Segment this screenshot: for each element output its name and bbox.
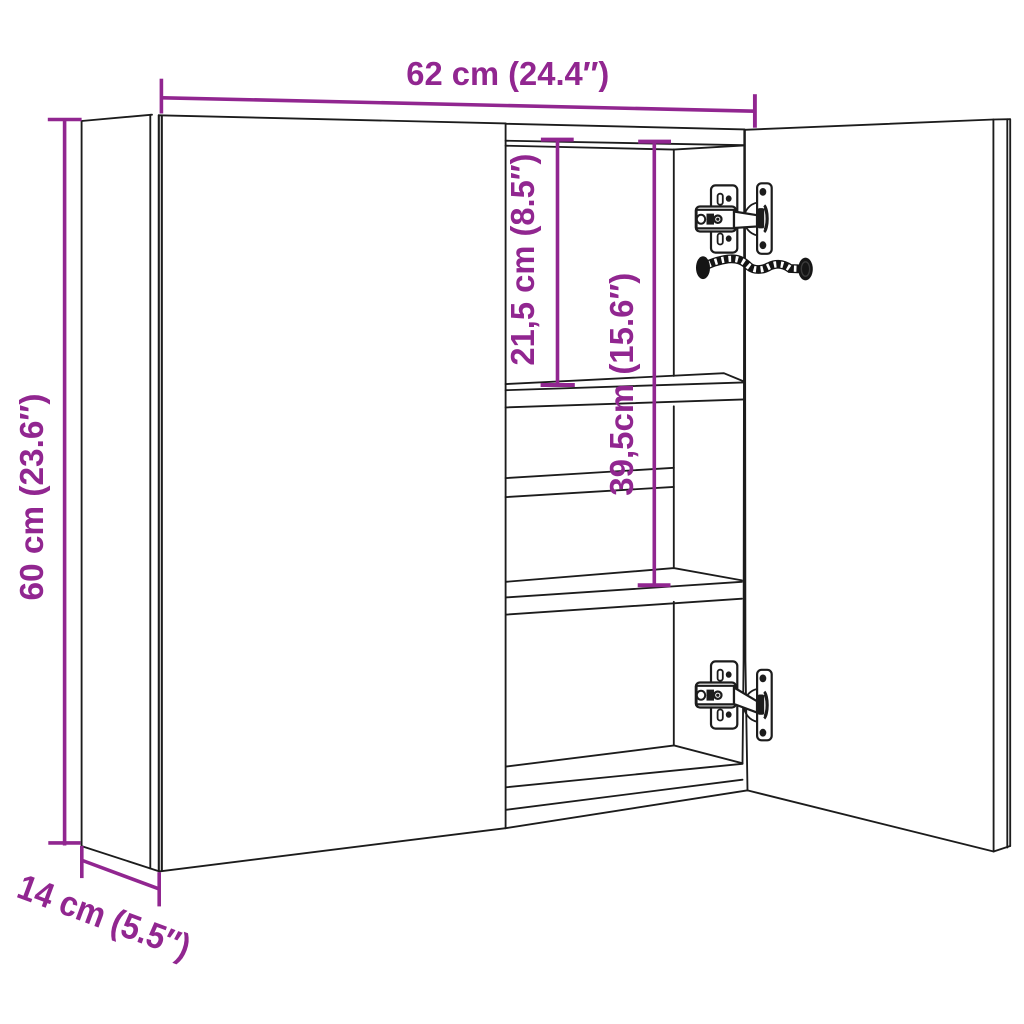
svg-text:14 cm (5.5″): 14 cm (5.5″) xyxy=(12,866,196,967)
svg-text:60 cm (23.6″): 60 cm (23.6″) xyxy=(14,394,51,601)
svg-text:62 cm (24.4″): 62 cm (24.4″) xyxy=(406,56,609,93)
svg-text:21,5 cm (8.5″): 21,5 cm (8.5″) xyxy=(505,154,542,366)
svg-text:39,5cm (15.6″): 39,5cm (15.6″) xyxy=(604,273,641,496)
